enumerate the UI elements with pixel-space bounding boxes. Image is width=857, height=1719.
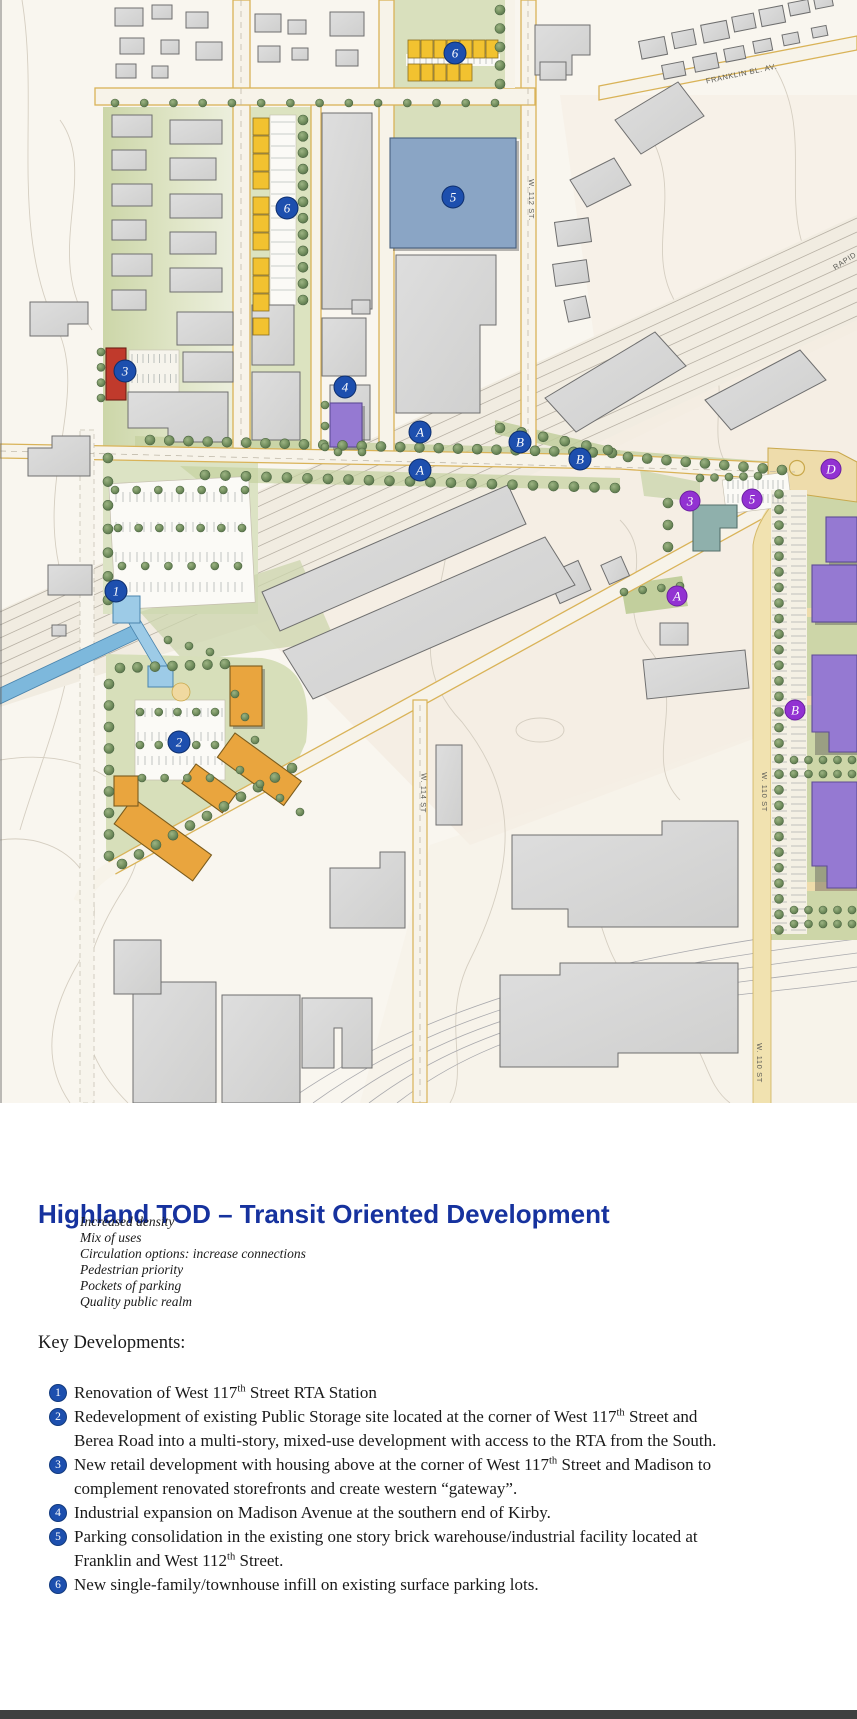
- item-text: Renovation of West 117th Street RTA Stat…: [74, 1383, 377, 1402]
- tree-icon: [662, 455, 672, 465]
- tree-icon: [775, 676, 784, 685]
- tree-icon: [775, 661, 784, 670]
- item-text: New retail development with housing abov…: [74, 1455, 711, 1498]
- tree-icon: [103, 548, 113, 558]
- tree-icon: [433, 99, 441, 107]
- tree-icon: [104, 808, 114, 818]
- tree-icon: [657, 584, 665, 592]
- tree-icon: [775, 614, 784, 623]
- tree-icon: [775, 754, 784, 763]
- tree-icon: [805, 920, 813, 928]
- tree-icon: [775, 708, 784, 717]
- tree-icon: [395, 442, 405, 452]
- tree-icon: [298, 164, 308, 174]
- item-text: Parking consolidation in the existing on…: [74, 1527, 698, 1570]
- tree-icon: [790, 756, 798, 764]
- tree-icon: [775, 645, 784, 654]
- tree-icon: [775, 848, 784, 857]
- tree-icon: [663, 542, 673, 552]
- tree-icon: [241, 713, 249, 721]
- svg-text:3: 3: [686, 494, 694, 509]
- tree-icon: [103, 571, 113, 581]
- map-marker-5: 5: [442, 186, 464, 208]
- tree-icon: [168, 661, 178, 671]
- tree-icon: [834, 770, 842, 778]
- tree-icon: [104, 679, 114, 689]
- tree-icon: [135, 524, 143, 532]
- tree-icon: [220, 659, 230, 669]
- tree-icon: [403, 99, 411, 107]
- tree-icon: [819, 920, 827, 928]
- tree-icon: [364, 475, 374, 485]
- map-marker-D: D: [821, 459, 841, 479]
- tree-icon: [155, 708, 163, 716]
- tree-icon: [298, 197, 308, 207]
- item-number-badge: 3: [49, 1456, 67, 1474]
- tree-icon: [164, 562, 172, 570]
- svg-text:D: D: [825, 462, 836, 477]
- street-label: W. 110 ST: [755, 1043, 764, 1083]
- tree-icon: [775, 785, 784, 794]
- site-plan-map: FRANKLIN BL. AV.W. 112 ST.W. 114 STW. 11…: [0, 0, 857, 1103]
- tree-icon: [415, 443, 425, 453]
- tree-icon: [316, 99, 324, 107]
- tree-icon: [298, 180, 308, 190]
- map-marker-1: 1: [105, 580, 127, 602]
- tree-icon: [97, 348, 105, 356]
- tree-icon: [154, 486, 162, 494]
- svg-text:4: 4: [342, 380, 349, 395]
- tree-icon: [848, 770, 856, 778]
- tree-icon: [434, 443, 444, 453]
- tree-icon: [775, 817, 784, 826]
- tree-icon: [385, 476, 395, 486]
- tree-icon: [211, 708, 219, 716]
- tree-icon: [111, 486, 119, 494]
- tree-icon: [374, 99, 382, 107]
- tree-icon: [206, 774, 214, 782]
- key-development-item: 2Redevelopment of existing Public Storag…: [0, 1405, 719, 1453]
- tree-icon: [299, 439, 309, 449]
- tree-icon: [639, 586, 647, 594]
- tree-icon: [192, 708, 200, 716]
- next-page-edge-strip: [0, 1710, 857, 1719]
- key-development-item: 1Renovation of West 117th Street RTA Sta…: [0, 1381, 719, 1405]
- tree-icon: [151, 840, 161, 850]
- tree-icon: [754, 472, 762, 480]
- svg-text:6: 6: [452, 46, 459, 61]
- tree-icon: [623, 452, 633, 462]
- map-left-edge: [0, 0, 2, 1103]
- principle-line: Pedestrian priority: [80, 1262, 306, 1278]
- tree-icon: [241, 438, 251, 448]
- tree-icon: [487, 479, 497, 489]
- tree-icon: [231, 690, 239, 698]
- svg-text:B: B: [576, 452, 584, 467]
- tod-principles-list: Increased densityMix of usesCirculation …: [80, 1214, 306, 1309]
- tree-icon: [530, 446, 540, 456]
- tree-icon: [775, 739, 784, 748]
- tree-icon: [848, 920, 856, 928]
- principle-line: Pockets of parking: [80, 1278, 306, 1294]
- item-text: New single-family/townhouse infill on ex…: [74, 1575, 539, 1594]
- tree-icon: [805, 770, 813, 778]
- tree-icon: [221, 471, 231, 481]
- tree-icon: [97, 394, 105, 402]
- tree-icon: [610, 483, 620, 493]
- tree-icon: [280, 439, 290, 449]
- tree-icon: [296, 808, 304, 816]
- tree-icon: [848, 906, 856, 914]
- tree-icon: [491, 99, 499, 107]
- tree-icon: [219, 801, 229, 811]
- tree-icon: [805, 756, 813, 764]
- item-number-badge: 6: [49, 1576, 67, 1594]
- principle-line: Circulation options: increase connection…: [80, 1246, 306, 1262]
- tree-icon: [111, 99, 119, 107]
- tree-icon: [155, 524, 163, 532]
- tree-icon: [104, 744, 114, 754]
- map-marker-A: A: [409, 421, 431, 443]
- tree-icon: [775, 770, 784, 779]
- street-label: W. 112 ST.: [527, 179, 536, 221]
- tree-icon: [321, 443, 329, 451]
- tree-icon: [202, 811, 212, 821]
- tree-icon: [104, 765, 114, 775]
- tree-icon: [700, 459, 710, 469]
- tree-icon: [549, 481, 559, 491]
- tree-icon: [256, 780, 264, 788]
- tree-icon: [603, 445, 613, 455]
- tree-icon: [219, 486, 227, 494]
- tree-icon: [145, 435, 155, 445]
- tree-icon: [236, 792, 246, 802]
- item-number-badge: 4: [49, 1504, 67, 1522]
- tree-icon: [719, 460, 729, 470]
- tree-icon: [508, 480, 518, 490]
- tree-icon: [775, 521, 784, 530]
- tree-icon: [164, 436, 174, 446]
- tree-icon: [261, 438, 271, 448]
- tree-icon: [775, 863, 784, 872]
- tree-icon: [134, 849, 144, 859]
- tree-icon: [97, 379, 105, 387]
- tree-icon: [103, 500, 113, 510]
- tree-icon: [211, 741, 219, 749]
- tree-icon: [790, 770, 798, 778]
- tree-icon: [775, 505, 784, 514]
- tree-icon: [298, 230, 308, 240]
- tree-icon: [775, 583, 784, 592]
- tree-icon: [298, 131, 308, 141]
- tree-icon: [141, 562, 149, 570]
- tree-icon: [298, 262, 308, 272]
- tree-icon: [495, 61, 505, 71]
- tree-icon: [114, 524, 122, 532]
- street-label: W. 114 ST: [419, 773, 429, 813]
- tree-icon: [251, 736, 259, 744]
- key-developments-list: 1Renovation of West 117th Street RTA Sta…: [0, 1381, 740, 1597]
- map-marker-4: 4: [334, 376, 356, 398]
- tree-icon: [334, 448, 342, 456]
- tree-icon: [528, 480, 538, 490]
- tree-icon: [104, 787, 114, 797]
- svg-text:B: B: [791, 703, 799, 718]
- tree-icon: [538, 432, 548, 442]
- tree-icon: [446, 478, 456, 488]
- principle-line: Mix of uses: [80, 1230, 306, 1246]
- tree-icon: [103, 477, 113, 487]
- item-number-badge: 1: [49, 1384, 67, 1402]
- tree-icon: [492, 445, 502, 455]
- map-marker-2: 2: [168, 731, 190, 753]
- tree-icon: [740, 473, 748, 481]
- tree-icon: [262, 472, 272, 482]
- tree-icon: [663, 498, 673, 508]
- tree-icon: [150, 662, 160, 672]
- svg-text:B: B: [516, 435, 524, 450]
- tree-icon: [136, 708, 144, 716]
- tree-icon: [188, 562, 196, 570]
- tree-icon: [775, 567, 784, 576]
- tree-icon: [834, 756, 842, 764]
- item-text: Industrial expansion on Madison Avenue a…: [74, 1503, 551, 1522]
- tree-icon: [805, 906, 813, 914]
- tree-icon: [819, 756, 827, 764]
- tree-icon: [739, 462, 749, 472]
- map-marker-B: B: [785, 700, 805, 720]
- map-marker-B: B: [509, 431, 531, 453]
- key-developments-heading: Key Developments:: [38, 1333, 185, 1354]
- tree-icon: [834, 920, 842, 928]
- tree-icon: [176, 486, 184, 494]
- tree-icon: [115, 663, 125, 673]
- tree-icon: [155, 741, 163, 749]
- key-development-item: 4Industrial expansion on Madison Avenue …: [0, 1501, 719, 1525]
- tree-icon: [217, 524, 225, 532]
- tree-icon: [775, 801, 784, 810]
- tree-icon: [696, 474, 704, 482]
- svg-text:5: 5: [450, 190, 457, 205]
- tree-icon: [140, 99, 148, 107]
- tree-icon: [184, 436, 194, 446]
- tree-icon: [775, 599, 784, 608]
- tree-icon: [848, 756, 856, 764]
- tree-icon: [321, 422, 329, 430]
- tree-icon: [777, 465, 787, 475]
- tree-icon: [236, 766, 244, 774]
- tree-icon: [775, 630, 784, 639]
- tree-icon: [560, 436, 570, 446]
- tree-icon: [169, 99, 177, 107]
- svg-text:A: A: [672, 589, 681, 604]
- tree-icon: [453, 444, 463, 454]
- tree-icon: [775, 692, 784, 701]
- tree-icon: [117, 859, 127, 869]
- site4-industrial-building: [330, 403, 362, 447]
- tree-icon: [104, 701, 114, 711]
- tree-icon: [462, 99, 470, 107]
- tree-icon: [303, 473, 313, 483]
- tree-icon: [133, 662, 143, 672]
- tree-icon: [298, 148, 308, 158]
- tree-icon: [234, 562, 242, 570]
- tree-icon: [183, 774, 191, 782]
- tree-icon: [200, 470, 210, 480]
- tree-icon: [345, 99, 353, 107]
- tree-icon: [241, 471, 251, 481]
- tree-icon: [467, 478, 477, 488]
- principle-line: Quality public realm: [80, 1294, 306, 1310]
- map-marker-6: 6: [276, 197, 298, 219]
- tree-icon: [819, 770, 827, 778]
- map-marker-3: 3: [680, 491, 700, 511]
- svg-text:6: 6: [284, 201, 291, 216]
- tree-icon: [775, 490, 784, 499]
- tree-icon: [775, 894, 784, 903]
- tree-icon: [376, 442, 386, 452]
- tree-icon: [642, 454, 652, 464]
- tree-icon: [775, 910, 784, 919]
- tree-icon: [118, 562, 126, 570]
- tree-icon: [495, 42, 505, 52]
- svg-text:A: A: [415, 463, 424, 478]
- tree-icon: [495, 24, 505, 34]
- tree-icon: [176, 524, 184, 532]
- tree-icon: [775, 879, 784, 888]
- tree-icon: [104, 722, 114, 732]
- tree-icon: [192, 741, 200, 749]
- tree-icon: [270, 773, 280, 783]
- tree-icon: [495, 5, 505, 15]
- item-text: Redevelopment of existing Public Storage…: [74, 1407, 716, 1450]
- tree-icon: [104, 851, 114, 861]
- tree-icon: [222, 437, 232, 447]
- tree-icon: [663, 520, 673, 530]
- tree-icon: [569, 482, 579, 492]
- svg-text:2: 2: [176, 735, 183, 750]
- tree-icon: [298, 295, 308, 305]
- tree-icon: [775, 723, 784, 732]
- svg-text:3: 3: [121, 364, 129, 379]
- tree-icon: [206, 648, 214, 656]
- tree-icon: [103, 453, 113, 463]
- map-marker-5: 5: [742, 489, 762, 509]
- tree-icon: [257, 99, 265, 107]
- tree-icon: [276, 794, 284, 802]
- item-number-badge: 2: [49, 1408, 67, 1426]
- tree-icon: [241, 486, 249, 494]
- tree-icon: [287, 763, 297, 773]
- tree-icon: [819, 906, 827, 914]
- tree-icon: [323, 474, 333, 484]
- tree-icon: [549, 446, 559, 456]
- tree-icon: [136, 741, 144, 749]
- tree-icon: [161, 774, 169, 782]
- tree-icon: [298, 279, 308, 289]
- tree-icon: [199, 99, 207, 107]
- tree-icon: [203, 437, 213, 447]
- tree-icon: [758, 463, 768, 473]
- tree-icon: [472, 444, 482, 454]
- tree-icon: [203, 660, 213, 670]
- tree-icon: [286, 99, 294, 107]
- tree-icon: [298, 115, 308, 125]
- tree-icon: [282, 473, 292, 483]
- map-marker-6: 6: [444, 42, 466, 64]
- tree-icon: [495, 423, 505, 433]
- tree-icon: [321, 401, 329, 409]
- tree-icon: [298, 213, 308, 223]
- tree-icon: [344, 475, 354, 485]
- tree-icon: [725, 473, 733, 481]
- key-development-item: 5Parking consolidation in the existing o…: [0, 1525, 719, 1573]
- tree-icon: [185, 660, 195, 670]
- map-marker-A: A: [667, 586, 687, 606]
- tree-icon: [133, 486, 141, 494]
- tree-icon: [168, 830, 178, 840]
- tree-icon: [238, 524, 246, 532]
- tree-icon: [790, 920, 798, 928]
- tree-icon: [790, 906, 798, 914]
- svg-text:A: A: [415, 425, 424, 440]
- tree-icon: [228, 99, 236, 107]
- tree-icon: [681, 457, 691, 467]
- tree-icon: [620, 588, 628, 596]
- tree-icon: [198, 486, 206, 494]
- map-marker-3: 3: [114, 360, 136, 382]
- svg-text:5: 5: [749, 492, 756, 507]
- tree-icon: [834, 906, 842, 914]
- tree-icon: [775, 926, 784, 935]
- tree-icon: [775, 536, 784, 545]
- tree-icon: [138, 774, 146, 782]
- tree-icon: [164, 636, 172, 644]
- key-development-item: 6New single-family/townhouse infill on e…: [0, 1573, 719, 1597]
- tree-icon: [711, 474, 719, 482]
- key-development-item: 3New retail development with housing abo…: [0, 1453, 719, 1501]
- tree-icon: [104, 830, 114, 840]
- tree-icon: [211, 562, 219, 570]
- tree-icon: [185, 642, 193, 650]
- new-residential-purple-buildings: [812, 517, 857, 888]
- tree-icon: [298, 246, 308, 256]
- map-marker-A: A: [409, 459, 431, 481]
- tree-icon: [174, 708, 182, 716]
- map-marker-B: B: [569, 448, 591, 470]
- tree-icon: [358, 448, 366, 456]
- tree-icon: [775, 552, 784, 561]
- tree-icon: [495, 79, 505, 89]
- tree-icon: [590, 482, 600, 492]
- tree-icon: [185, 821, 195, 831]
- tree-icon: [103, 524, 113, 534]
- item-number-badge: 5: [49, 1528, 67, 1546]
- svg-text:1: 1: [113, 584, 120, 599]
- tree-icon: [775, 832, 784, 841]
- tree-icon: [97, 363, 105, 371]
- principle-line: Increased density: [80, 1214, 306, 1230]
- tree-icon: [197, 524, 205, 532]
- street-label: W. 110 ST: [760, 772, 769, 812]
